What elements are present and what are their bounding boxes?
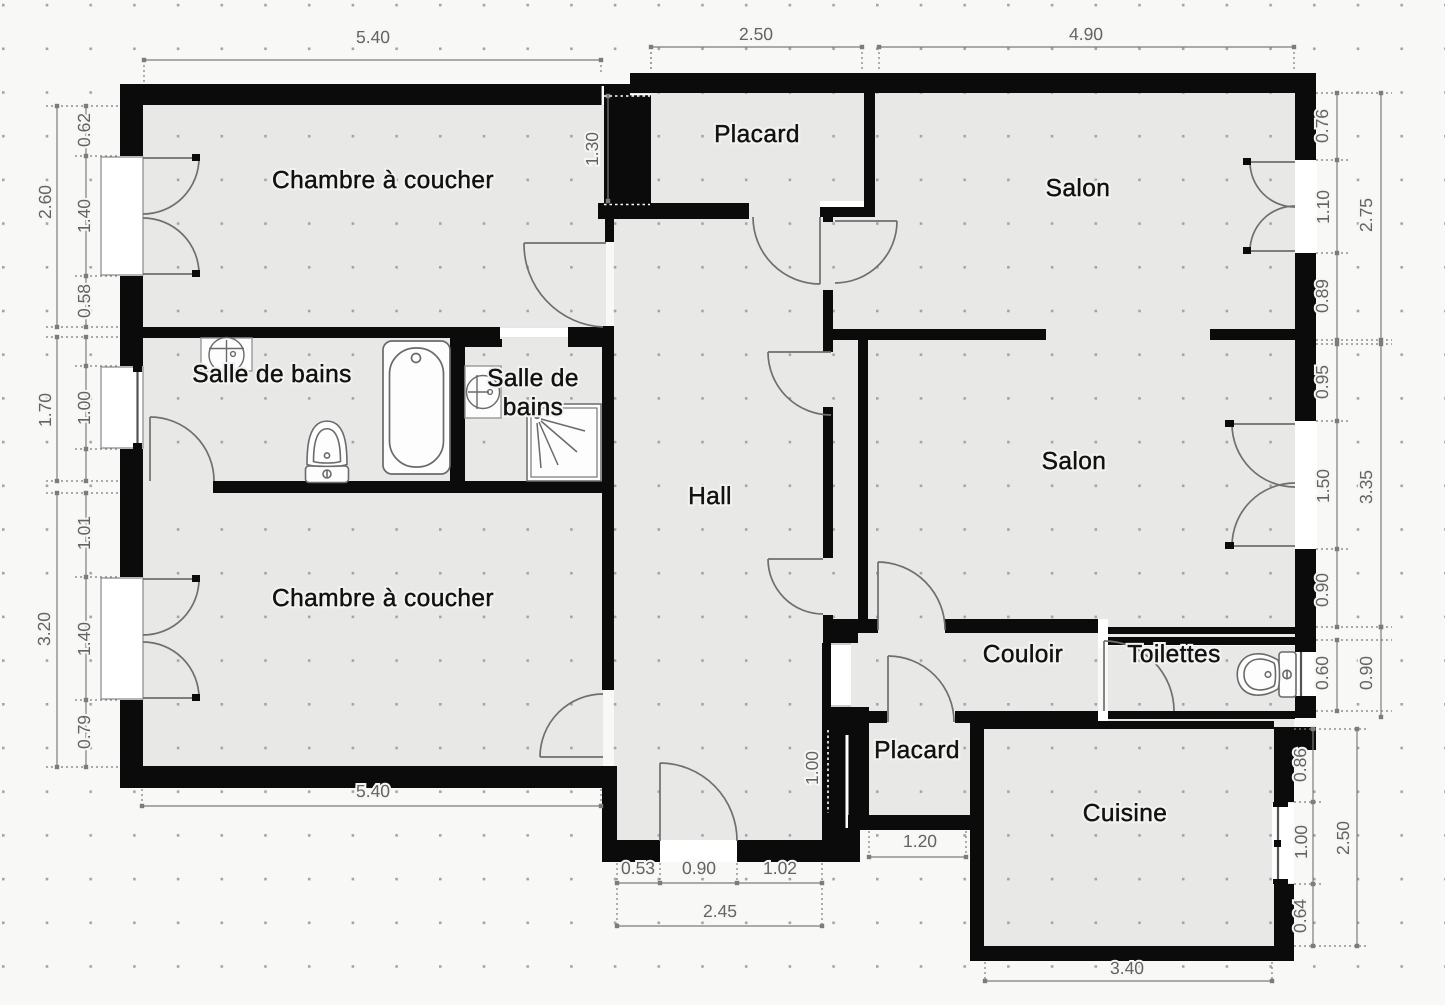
svg-text:0.86: 0.86: [1290, 748, 1310, 782]
svg-text:1.00: 1.00: [802, 751, 822, 785]
svg-text:0.95: 0.95: [1312, 365, 1332, 399]
svg-text:Toilettes: Toilettes: [1127, 641, 1220, 668]
svg-text:3.40: 3.40: [1110, 958, 1144, 978]
svg-text:Chambre à coucher: Chambre à coucher: [272, 585, 494, 612]
svg-text:1.20: 1.20: [903, 831, 937, 851]
svg-text:0.53: 0.53: [621, 858, 655, 878]
svg-text:Placard: Placard: [714, 121, 800, 148]
svg-text:0.90: 0.90: [682, 858, 716, 878]
svg-text:1.40: 1.40: [74, 622, 94, 656]
svg-text:1.00: 1.00: [74, 391, 94, 425]
svg-text:0.60: 0.60: [1312, 656, 1332, 690]
svg-text:0.62: 0.62: [74, 113, 94, 147]
svg-text:0.79: 0.79: [74, 715, 94, 749]
svg-text:0.90: 0.90: [1356, 656, 1376, 690]
svg-text:Placard: Placard: [874, 737, 960, 764]
svg-text:3.35: 3.35: [1356, 470, 1376, 504]
svg-text:Salon: Salon: [1046, 175, 1111, 202]
svg-text:3.20: 3.20: [34, 612, 54, 646]
svg-text:5.40: 5.40: [356, 781, 390, 801]
svg-text:0.58: 0.58: [74, 284, 94, 318]
svg-text:Salon: Salon: [1042, 448, 1107, 475]
svg-text:0.64: 0.64: [1290, 899, 1310, 933]
svg-text:1.00: 1.00: [1291, 825, 1311, 859]
svg-text:2.45: 2.45: [703, 901, 737, 921]
svg-text:2.50: 2.50: [739, 24, 773, 44]
svg-text:1.02: 1.02: [763, 858, 797, 878]
svg-text:bains: bains: [503, 394, 564, 421]
svg-text:1.40: 1.40: [74, 199, 94, 233]
svg-text:0.76: 0.76: [1312, 109, 1332, 143]
svg-text:4.90: 4.90: [1069, 24, 1103, 44]
svg-text:1.01: 1.01: [74, 516, 94, 550]
svg-text:Salle de: Salle de: [487, 365, 579, 392]
svg-text:2.60: 2.60: [35, 185, 55, 219]
svg-text:1.70: 1.70: [35, 393, 55, 427]
svg-text:Salle de bains: Salle de bains: [192, 361, 352, 388]
svg-text:2.50: 2.50: [1333, 821, 1353, 855]
svg-text:1.30: 1.30: [582, 132, 602, 166]
svg-text:1.10: 1.10: [1313, 190, 1333, 224]
svg-text:0.90: 0.90: [1312, 573, 1332, 607]
svg-text:0.89: 0.89: [1312, 279, 1332, 313]
svg-text:Chambre à coucher: Chambre à coucher: [272, 167, 494, 194]
svg-text:Hall: Hall: [688, 483, 732, 510]
svg-text:5.40: 5.40: [356, 27, 390, 47]
svg-text:2.75: 2.75: [1356, 198, 1376, 232]
svg-text:1.50: 1.50: [1313, 469, 1333, 503]
svg-text:Couloir: Couloir: [983, 641, 1063, 668]
svg-text:Cuisine: Cuisine: [1083, 800, 1168, 827]
